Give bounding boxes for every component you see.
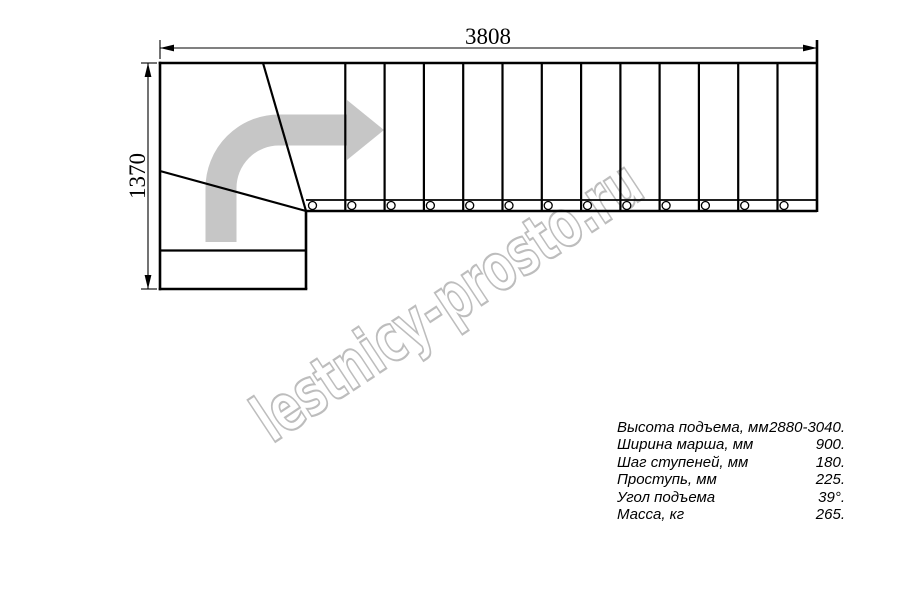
step-dividers [345, 63, 777, 211]
direction-arrow-icon [221, 100, 384, 242]
spec-value: 265. [816, 506, 845, 523]
spec-row-mass: Масса, кг 265. [617, 506, 845, 523]
spec-value: 2880-3040. [769, 419, 845, 436]
spec-value: 900. [816, 436, 845, 453]
spec-label: Ширина марша, мм [617, 436, 753, 453]
spec-row-flight-width: Ширина марша, мм 900. [617, 436, 845, 453]
dimension-width: 3808 [160, 24, 817, 59]
spec-value: 180. [816, 454, 845, 471]
height-dimension-label: 1370 [125, 153, 150, 199]
technical-drawing-canvas: lestnicy-prosto.ru [0, 0, 900, 600]
spec-label: Высота подъема, мм [617, 419, 769, 436]
spec-label: Угол подъема [617, 489, 715, 506]
spec-value: 225. [816, 471, 845, 488]
spec-label: Шаг ступеней, мм [617, 454, 748, 471]
spec-value: 39°. [818, 489, 845, 506]
spec-label: Проступь, мм [617, 471, 717, 488]
spec-label: Масса, кг [617, 506, 684, 523]
spec-row-rise-height: Высота подъема, мм 2880-3040. [617, 419, 845, 436]
dim-arrow-right [803, 45, 817, 52]
baluster-markers [309, 202, 789, 210]
spec-row-step-pitch: Шаг ступеней, мм 180. [617, 454, 845, 471]
spec-row-angle: Угол подъема 39°. [617, 489, 845, 506]
specs-table: Высота подъема, мм 2880-3040. Ширина мар… [617, 419, 845, 523]
spec-row-tread: Проступь, мм 225. [617, 471, 845, 488]
dim-arrow-left [160, 45, 174, 52]
width-dimension-label: 3808 [465, 24, 511, 49]
dimension-height: 1370 [125, 63, 157, 289]
dim-arrow-top [145, 63, 152, 77]
stair-outline [159, 40, 817, 290]
dim-arrow-bottom [145, 275, 152, 289]
